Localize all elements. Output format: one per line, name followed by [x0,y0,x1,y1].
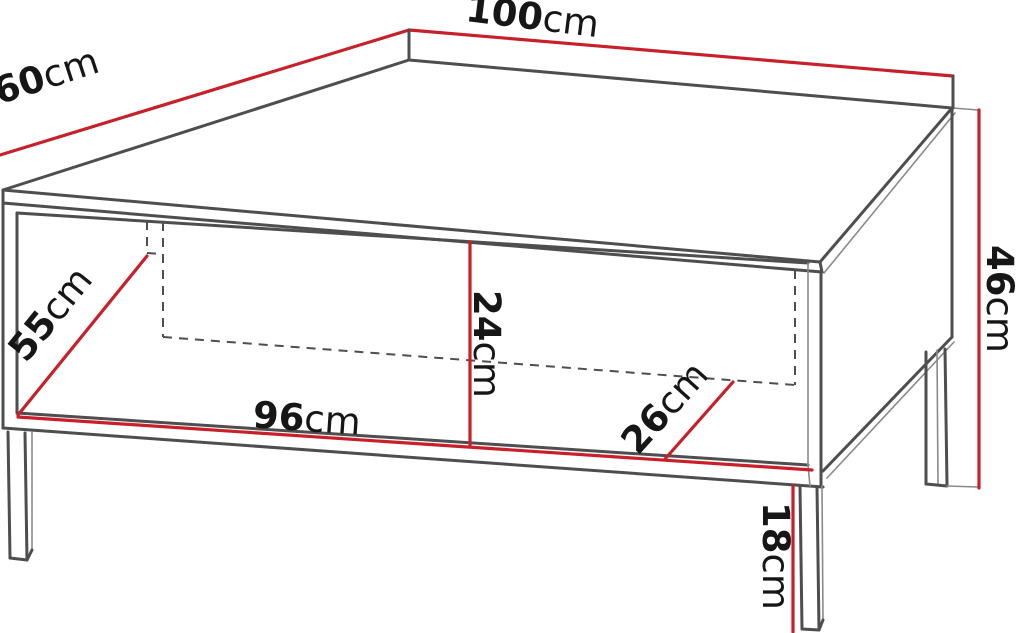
tabletop-front-edge [3,190,820,262]
dimension-line-top-width [409,30,953,76]
furniture-dimension-diagram: 100cm 60cm 46cm 55cm 96cm 24cm 26cm 18cm [0,0,1020,633]
dimension-label-interior-diagonal: 55cm [0,259,101,370]
dimension-label-interior-depth: 26cm [613,353,717,462]
right-panel-bottom-edge [823,337,952,471]
interior-ceiling-edge [17,213,808,263]
diagram-canvas: 100cm 60cm 46cm 55cm 96cm 24cm 26cm 18cm [0,0,1020,633]
front-left-leg [8,432,32,560]
dimension-labels: 100cm 60cm 46cm 55cm 96cm 24cm 26cm 18cm [0,0,1020,610]
height-extension-tick-bottom [947,486,978,487]
height-extension-tick-top [953,108,978,110]
tabletop-right-edge [820,108,952,262]
dimension-line-interior-width [18,417,812,470]
dimension-label-leg-height: 18cm [754,502,797,610]
hidden-back-left-corner-tick [147,253,161,254]
dimension-label-interior-width: 96cm [252,393,363,443]
tabletop-back-edge [409,60,952,108]
dimension-label-interior-height: 24cm [465,290,508,398]
dimension-label-top-depth: 60cm [0,39,104,113]
right-panel-bottom-thickness [827,342,954,478]
tabletop-bottom-right-edge [824,113,955,273]
front-right-leg [800,486,823,630]
dimension-label-total-height: 46cm [978,245,1020,353]
